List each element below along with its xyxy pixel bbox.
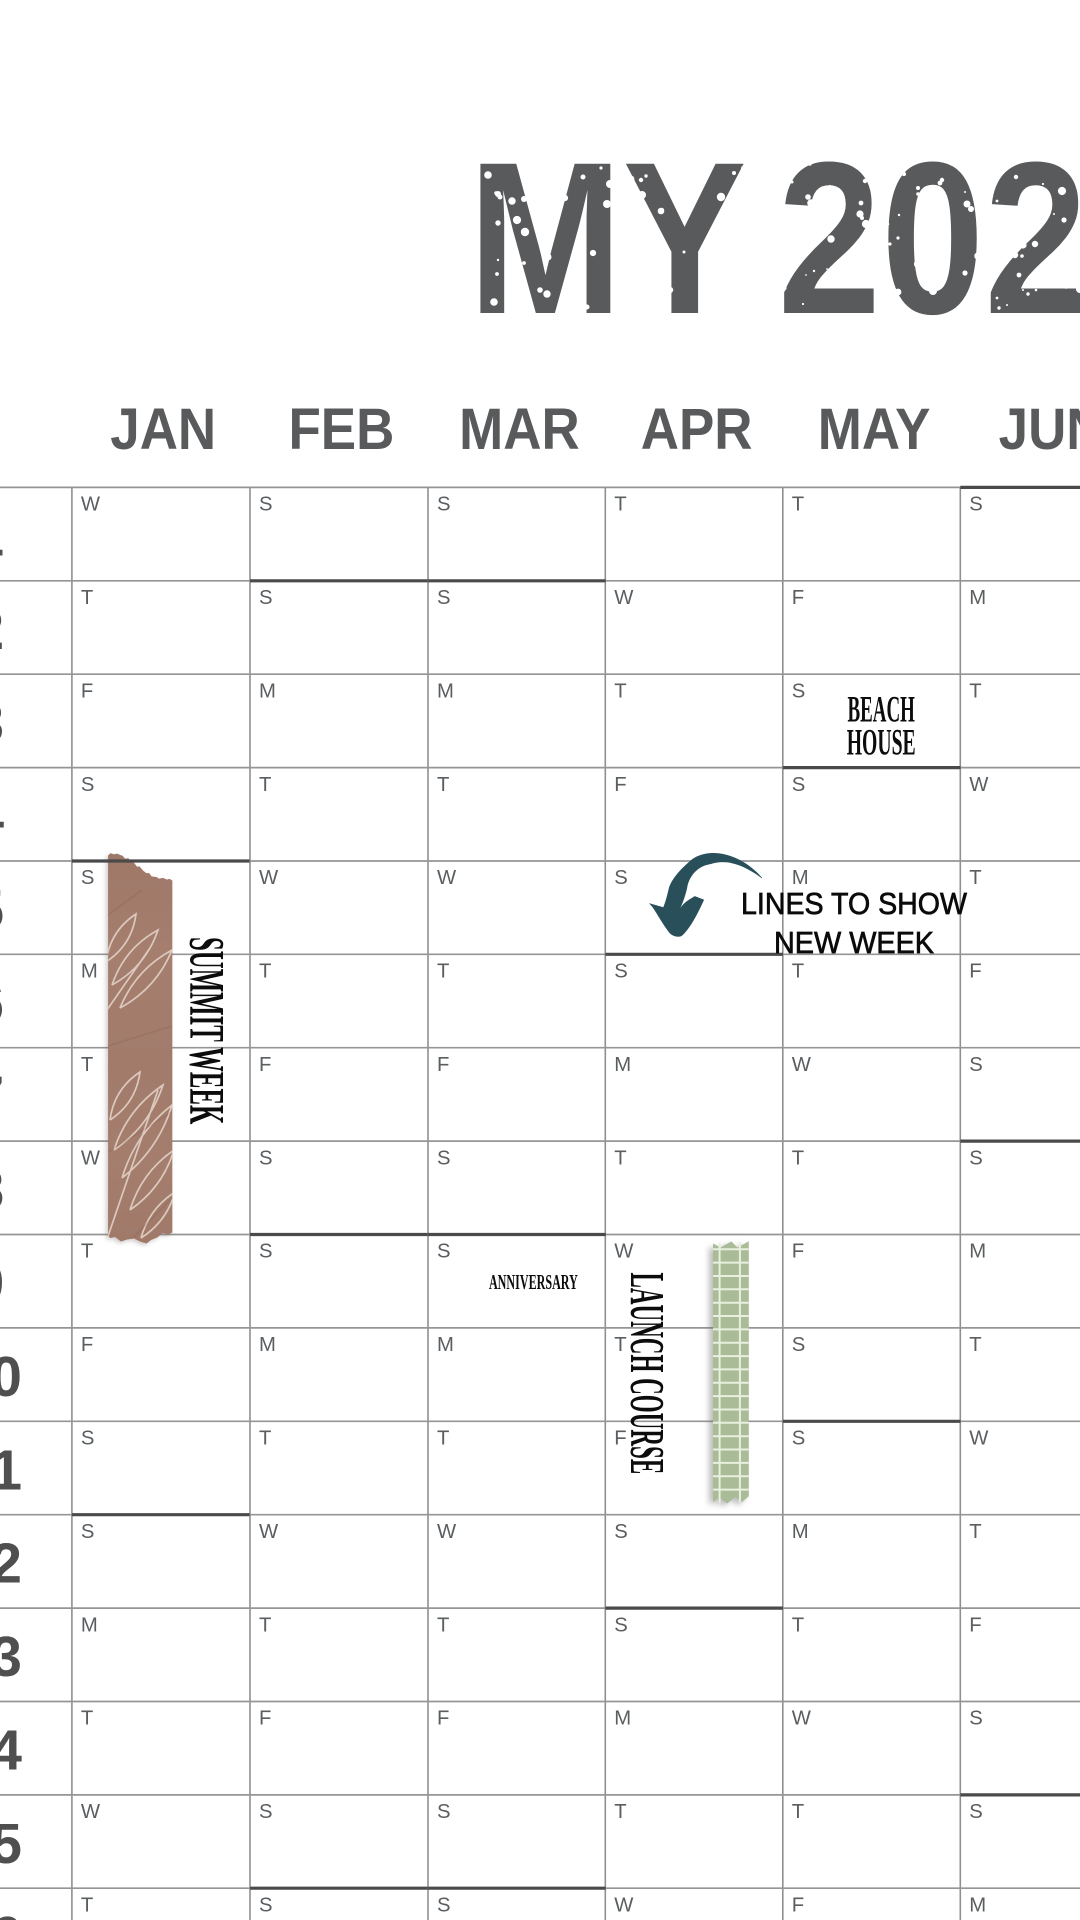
svg-text:T: T	[969, 867, 981, 889]
svg-text:M: M	[81, 961, 98, 983]
svg-text:S: S	[259, 587, 273, 609]
svg-text:S: S	[259, 1241, 273, 1263]
svg-text:T: T	[437, 1428, 449, 1450]
svg-text:8: 8	[0, 1158, 4, 1221]
svg-text:10: 10	[0, 1345, 22, 1408]
svg-text:11: 11	[0, 1438, 22, 1501]
svg-text:T: T	[792, 1801, 804, 1823]
svg-text:F: F	[792, 587, 804, 609]
svg-text:T: T	[792, 494, 804, 516]
svg-text:F: F	[792, 1895, 804, 1917]
svg-text:W: W	[969, 774, 989, 796]
svg-text:S: S	[259, 1147, 273, 1169]
svg-text:T: T	[437, 961, 449, 983]
svg-text:T: T	[792, 1614, 804, 1636]
svg-text:W: W	[259, 1521, 279, 1543]
svg-text:M: M	[969, 1241, 986, 1263]
svg-text:W: W	[81, 1147, 101, 1169]
svg-text:W: W	[792, 1708, 812, 1730]
svg-text:S: S	[259, 1801, 273, 1823]
svg-text:14: 14	[0, 1719, 22, 1782]
svg-text:F: F	[81, 680, 93, 702]
svg-text:S: S	[259, 494, 273, 516]
svg-text:HOUSE: HOUSE	[847, 722, 916, 763]
svg-text:S: S	[792, 1334, 806, 1356]
svg-text:W: W	[437, 867, 457, 889]
svg-text:W: W	[614, 1895, 634, 1917]
svg-text:M: M	[259, 1334, 276, 1356]
svg-text:MAR: MAR	[459, 396, 579, 462]
svg-text:S: S	[81, 774, 95, 796]
svg-text:16: 16	[0, 1905, 22, 1920]
svg-text:1: 1	[0, 504, 4, 567]
svg-text:15: 15	[0, 1812, 22, 1875]
svg-text:T: T	[81, 1895, 93, 1917]
svg-text:F: F	[969, 1614, 981, 1636]
svg-text:S: S	[437, 1801, 451, 1823]
svg-text:T: T	[81, 587, 93, 609]
svg-text:12: 12	[0, 1532, 22, 1595]
svg-text:S: S	[969, 494, 983, 516]
svg-text:S: S	[969, 1801, 983, 1823]
svg-text:T: T	[259, 774, 271, 796]
svg-text:F: F	[259, 1054, 271, 1076]
svg-text:W: W	[614, 1241, 634, 1263]
svg-text:S: S	[437, 1147, 451, 1169]
svg-text:T: T	[81, 1241, 93, 1263]
svg-text:S: S	[969, 1147, 983, 1169]
svg-text:F: F	[81, 1334, 93, 1356]
svg-text:F: F	[437, 1708, 449, 1730]
svg-text:APR: APR	[641, 396, 753, 462]
svg-text:M: M	[792, 1521, 809, 1543]
svg-text:13: 13	[0, 1625, 22, 1688]
svg-text:M: M	[81, 1614, 98, 1636]
svg-text:T: T	[614, 680, 626, 702]
svg-text:T: T	[437, 774, 449, 796]
svg-text:S: S	[437, 494, 451, 516]
svg-text:M: M	[437, 680, 454, 702]
svg-text:M: M	[614, 1708, 631, 1730]
svg-text:S: S	[81, 1428, 95, 1450]
svg-text:S: S	[81, 867, 95, 889]
svg-text:ANNIVERSARY: ANNIVERSARY	[489, 1270, 578, 1294]
svg-text:S: S	[969, 1054, 983, 1076]
svg-text:F: F	[969, 961, 981, 983]
svg-text:S: S	[437, 1241, 451, 1263]
svg-text:T: T	[437, 1614, 449, 1636]
svg-text:M: M	[969, 587, 986, 609]
svg-text:T: T	[969, 680, 981, 702]
svg-text:S: S	[437, 587, 451, 609]
svg-text:W: W	[81, 1801, 101, 1823]
svg-text:3: 3	[0, 691, 4, 754]
svg-text:5: 5	[0, 878, 4, 941]
svg-text:T: T	[614, 494, 626, 516]
svg-text:S: S	[792, 680, 806, 702]
svg-text:T: T	[792, 1147, 804, 1169]
svg-text:T: T	[969, 1521, 981, 1543]
svg-text:T: T	[792, 961, 804, 983]
svg-text:T: T	[614, 1801, 626, 1823]
svg-text:S: S	[259, 1895, 273, 1917]
svg-text:M: M	[437, 1334, 454, 1356]
svg-text:2: 2	[0, 598, 4, 661]
svg-text:MAY: MAY	[818, 396, 931, 462]
svg-text:S: S	[81, 1521, 95, 1543]
svg-text:M: M	[259, 680, 276, 702]
svg-text:S: S	[614, 1614, 628, 1636]
svg-text:S: S	[792, 774, 806, 796]
svg-text:SUMMIT WEEK: SUMMIT WEEK	[180, 937, 235, 1125]
svg-text:F: F	[259, 1708, 271, 1730]
svg-text:M: M	[614, 1054, 631, 1076]
svg-text:W: W	[969, 1428, 989, 1450]
svg-text:JAN: JAN	[110, 396, 216, 462]
svg-text:T: T	[259, 961, 271, 983]
svg-text:M: M	[969, 1895, 986, 1917]
svg-text:T: T	[259, 1614, 271, 1636]
svg-text:MY 2025: MY 2025	[468, 116, 1080, 359]
svg-text:S: S	[614, 1521, 628, 1543]
svg-text:T: T	[81, 1708, 93, 1730]
svg-text:FEB: FEB	[288, 396, 394, 462]
svg-text:F: F	[792, 1241, 804, 1263]
svg-text:W: W	[259, 867, 279, 889]
svg-text:LAUNCH COURSE: LAUNCH COURSE	[620, 1273, 674, 1475]
svg-text:W: W	[614, 587, 634, 609]
svg-text:T: T	[969, 1334, 981, 1356]
svg-text:S: S	[437, 1895, 451, 1917]
svg-text:W: W	[437, 1521, 457, 1543]
svg-text:7: 7	[0, 1065, 4, 1128]
svg-text:NEW WEEK: NEW WEEK	[774, 926, 934, 960]
svg-text:S: S	[614, 961, 628, 983]
svg-text:T: T	[81, 1054, 93, 1076]
svg-text:S: S	[792, 1428, 806, 1450]
svg-text:W: W	[81, 494, 101, 516]
svg-text:4: 4	[0, 785, 4, 848]
svg-text:T: T	[259, 1428, 271, 1450]
svg-text:6: 6	[0, 971, 4, 1034]
svg-text:F: F	[614, 774, 626, 796]
svg-text:9: 9	[0, 1252, 4, 1315]
svg-text:W: W	[792, 1054, 812, 1076]
svg-text:LINES TO SHOW: LINES TO SHOW	[741, 887, 967, 921]
svg-text:F: F	[437, 1054, 449, 1076]
svg-text:T: T	[614, 1147, 626, 1169]
svg-text:S: S	[969, 1708, 983, 1730]
svg-text:S: S	[614, 867, 628, 889]
svg-text:JUN: JUN	[999, 396, 1080, 462]
